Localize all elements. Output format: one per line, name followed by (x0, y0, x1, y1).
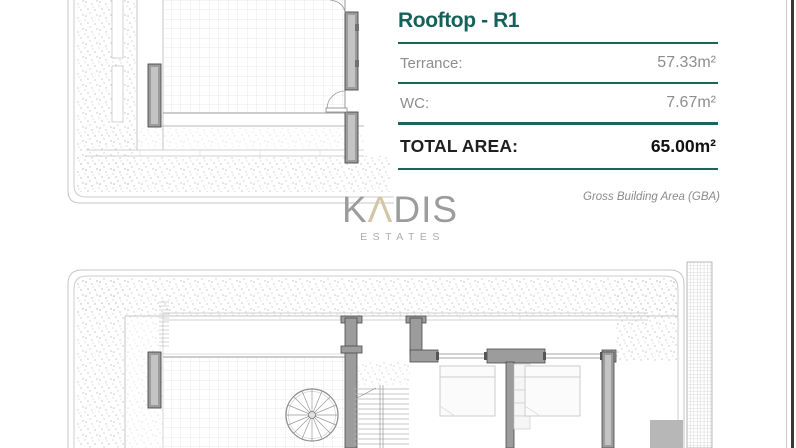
logo-letter-a: Λ (368, 189, 394, 230)
bed (525, 366, 580, 416)
right-wall (602, 352, 614, 448)
staircase (354, 362, 410, 448)
area-value: 57.33m² (657, 54, 716, 72)
equipment-block (650, 420, 683, 448)
area-summary-panel: Rooftop - R1 Terrance: 57.33m² WC: 7.67m… (398, 4, 718, 170)
area-label: Terrance: (400, 55, 463, 72)
rooftop-terrace-plan (68, 0, 394, 203)
lower-floor-plan (68, 262, 712, 448)
spiral-staircase (286, 389, 338, 441)
brochure-page: Rooftop - R1 Terrance: 57.33m² WC: 7.67m… (0, 0, 796, 448)
logo-subtitle: ESTATES (333, 231, 467, 243)
divider (398, 168, 718, 170)
area-row-wc: WC: 7.67m² (398, 84, 718, 122)
page-edge-light (786, 0, 787, 448)
logo-wordmark: KΛDIS (342, 189, 458, 230)
shaft-hatch (687, 262, 712, 448)
bed (440, 366, 495, 416)
wall-right-lower (345, 112, 358, 163)
area-label: WC: (400, 95, 429, 112)
page-edge-dark (791, 0, 794, 448)
kadis-logo: KΛDIS ESTATES (333, 190, 467, 243)
wall-pilaster (148, 64, 161, 127)
area-row-total: TOTAL AREA: 65.00m² (398, 125, 718, 168)
wall-pilaster (148, 352, 161, 408)
door-leaf (326, 108, 347, 112)
bedroom-wall (410, 349, 616, 363)
wall-right-upper (345, 12, 359, 90)
total-area-label: TOTAL AREA: (400, 136, 518, 157)
page-title: Rooftop - R1 (398, 4, 718, 42)
logo-letters-dis: DIS (393, 189, 458, 230)
logo-letter-k: K (342, 189, 368, 230)
area-row-terrace: Terrance: 57.33m² (398, 44, 718, 82)
total-area-value: 65.00m² (651, 136, 716, 157)
area-value: 7.67m² (666, 94, 716, 112)
partition-wall (506, 362, 514, 448)
